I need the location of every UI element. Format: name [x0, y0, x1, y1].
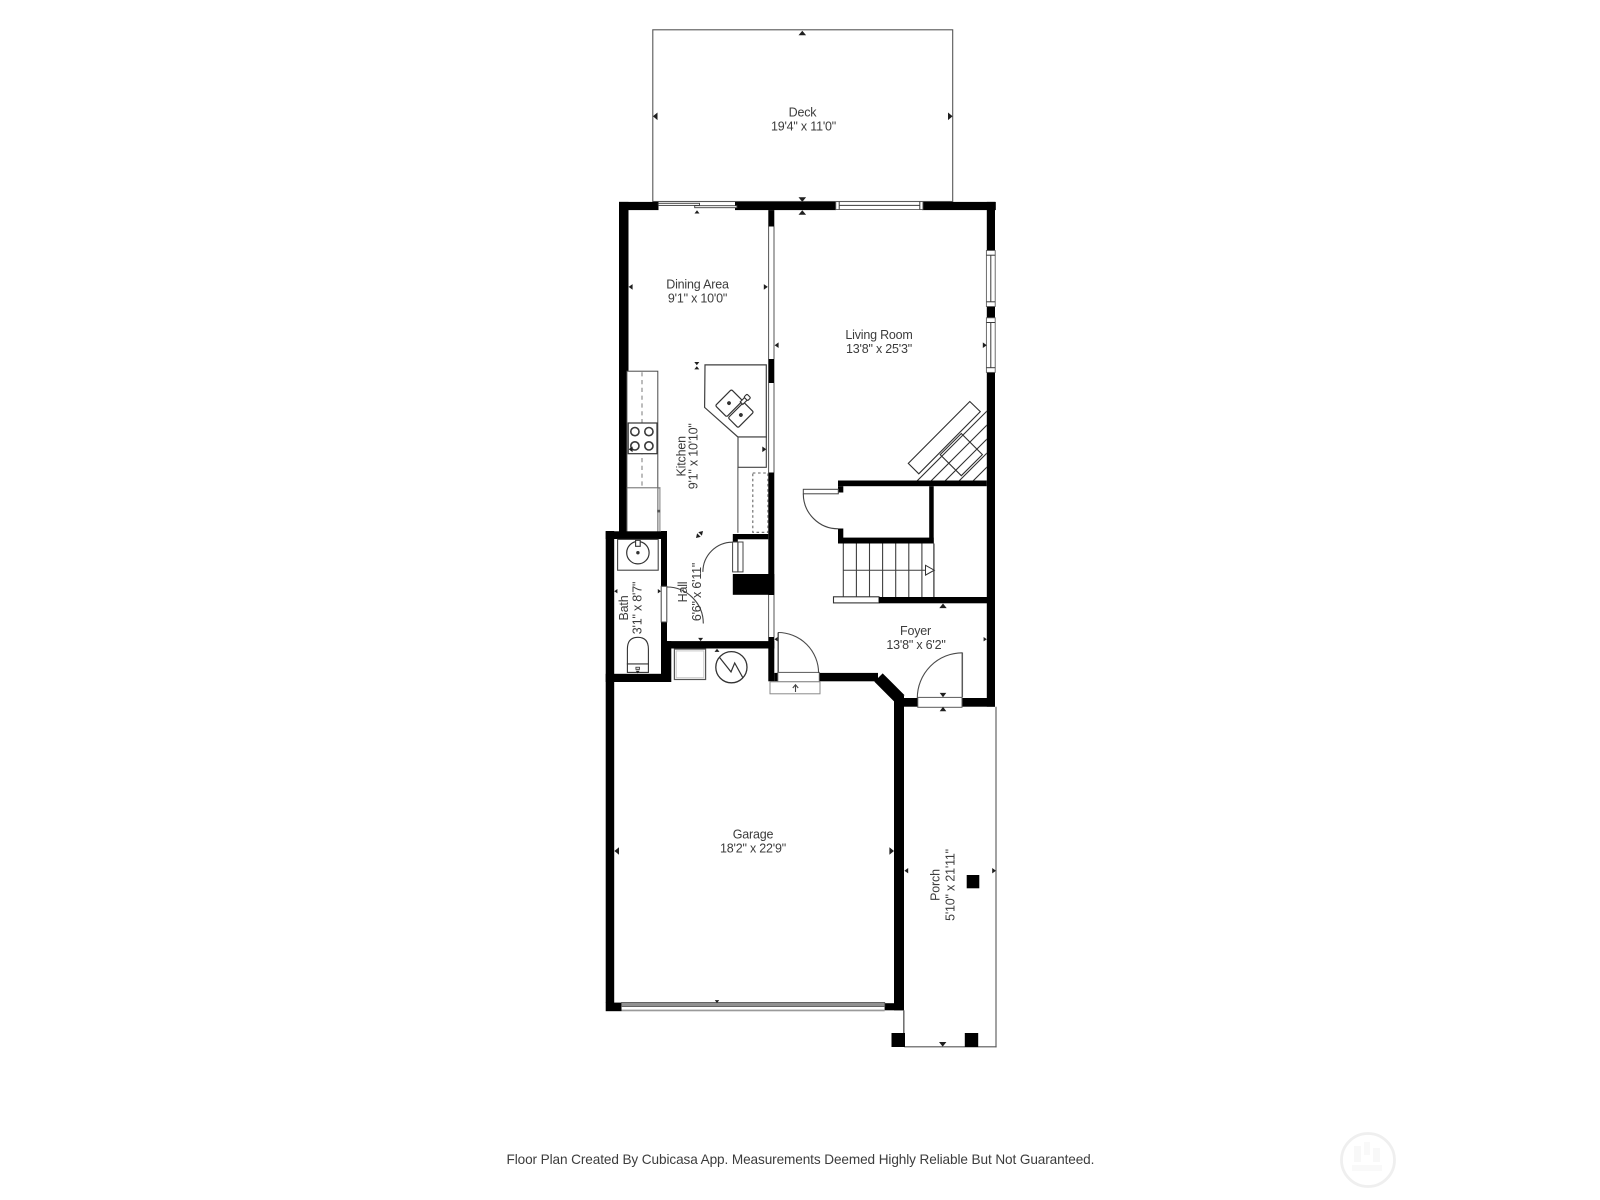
svg-text:Living Room: Living Room [845, 328, 912, 342]
svg-text:9'1" x 10'10": 9'1" x 10'10" [687, 423, 701, 489]
svg-text:Bath: Bath [617, 595, 631, 620]
svg-text:Foyer: Foyer [900, 624, 931, 638]
svg-text:6'6" x 6'11": 6'6" x 6'11" [690, 563, 704, 621]
svg-text:13'8" x 25'3": 13'8" x 25'3" [846, 342, 912, 356]
svg-text:Floor Plan Created By Cubicasa: Floor Plan Created By Cubicasa App. Meas… [507, 1152, 1095, 1167]
svg-text:18'2" x 22'9": 18'2" x 22'9" [720, 842, 786, 856]
svg-text:5'10" x 21'11": 5'10" x 21'11" [944, 849, 958, 921]
svg-text:Deck: Deck [789, 106, 818, 120]
svg-text:Hall: Hall [676, 582, 690, 603]
svg-text:Dining Area: Dining Area [666, 278, 729, 292]
svg-text:3'1" x 8'7": 3'1" x 8'7" [631, 582, 645, 634]
svg-text:Garage: Garage [733, 828, 774, 842]
svg-text:9'1" x 10'0": 9'1" x 10'0" [668, 292, 727, 306]
svg-text:19'4" x 11'0": 19'4" x 11'0" [771, 120, 836, 134]
svg-text:13'8" x 6'2": 13'8" x 6'2" [886, 638, 945, 652]
svg-text:Porch: Porch [929, 869, 943, 901]
